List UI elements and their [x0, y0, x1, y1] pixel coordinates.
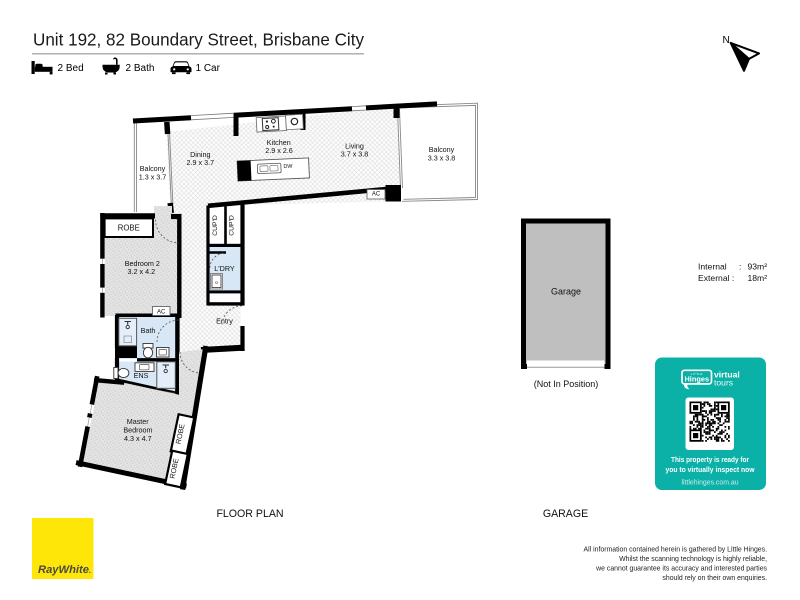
svg-text:we cannot guarantee its accura: we cannot guarantee its accuracy and int…	[595, 566, 767, 573]
svg-text:DW: DW	[283, 164, 293, 170]
svg-text:ROBE: ROBE	[118, 224, 140, 233]
svg-text:AC: AC	[157, 309, 166, 315]
svg-text:3.3 x 3.8: 3.3 x 3.8	[428, 154, 456, 163]
svg-text:2 Bath: 2 Bath	[126, 63, 155, 74]
svg-text:Hinges: Hinges	[684, 375, 709, 384]
svg-text:littlehinges.com.au: littlehinges.com.au	[681, 480, 738, 487]
svg-text:3.2 x 4.2: 3.2 x 4.2	[128, 267, 156, 276]
svg-text:This property is ready for: This property is ready for	[671, 455, 749, 464]
svg-text:2.9 x 3.7: 2.9 x 3.7	[187, 158, 215, 167]
svg-text:Bath: Bath	[141, 326, 156, 335]
svg-text:CUP'D: CUP'D	[229, 215, 236, 236]
svg-text:should rely on their own enqui: should rely on their own enquiries.	[662, 575, 767, 582]
svg-text:Garage: Garage	[551, 287, 581, 297]
svg-text:2 Bed: 2 Bed	[58, 63, 84, 74]
svg-text:(Not In Position): (Not In Position)	[534, 379, 599, 389]
svg-text:Unit 192, 82 Boundary Street,: Unit 192, 82 Boundary Street, Brisbane C…	[33, 30, 364, 50]
svg-text:1.3 x 3.7: 1.3 x 3.7	[139, 172, 167, 181]
svg-text:tours: tours	[714, 377, 733, 387]
svg-text:93m²: 93m²	[748, 262, 768, 272]
svg-text:Internal: Internal	[698, 262, 727, 272]
svg-text:Whilst the scanning technology: Whilst the scanning technology is highly…	[619, 556, 767, 563]
svg-text:CUP'D: CUP'D	[212, 215, 219, 236]
svg-text:you to virtually inspect now: you to virtually inspect now	[666, 465, 755, 474]
svg-text::: :	[739, 262, 741, 272]
svg-text:Entry: Entry	[216, 317, 233, 326]
svg-text:RayWhite.: RayWhite.	[38, 564, 91, 576]
svg-text:All information contained here: All information contained herein is gath…	[584, 547, 768, 554]
svg-text:L'DRY: L'DRY	[214, 264, 235, 273]
svg-text:AC: AC	[372, 192, 381, 198]
svg-text:2.9 x 2.6: 2.9 x 2.6	[265, 146, 293, 155]
svg-text:ENS: ENS	[134, 371, 149, 380]
svg-text:1 Car: 1 Car	[196, 63, 221, 74]
svg-text:GARAGE: GARAGE	[543, 508, 588, 520]
svg-text:External :: External :	[698, 273, 734, 283]
svg-text:FLOOR PLAN: FLOOR PLAN	[216, 508, 283, 520]
svg-text:N: N	[723, 35, 730, 46]
svg-text:18m²: 18m²	[748, 273, 768, 283]
svg-text:3.7 x 3.8: 3.7 x 3.8	[341, 150, 369, 159]
svg-text:4.3 x 4.7: 4.3 x 4.7	[124, 434, 152, 443]
